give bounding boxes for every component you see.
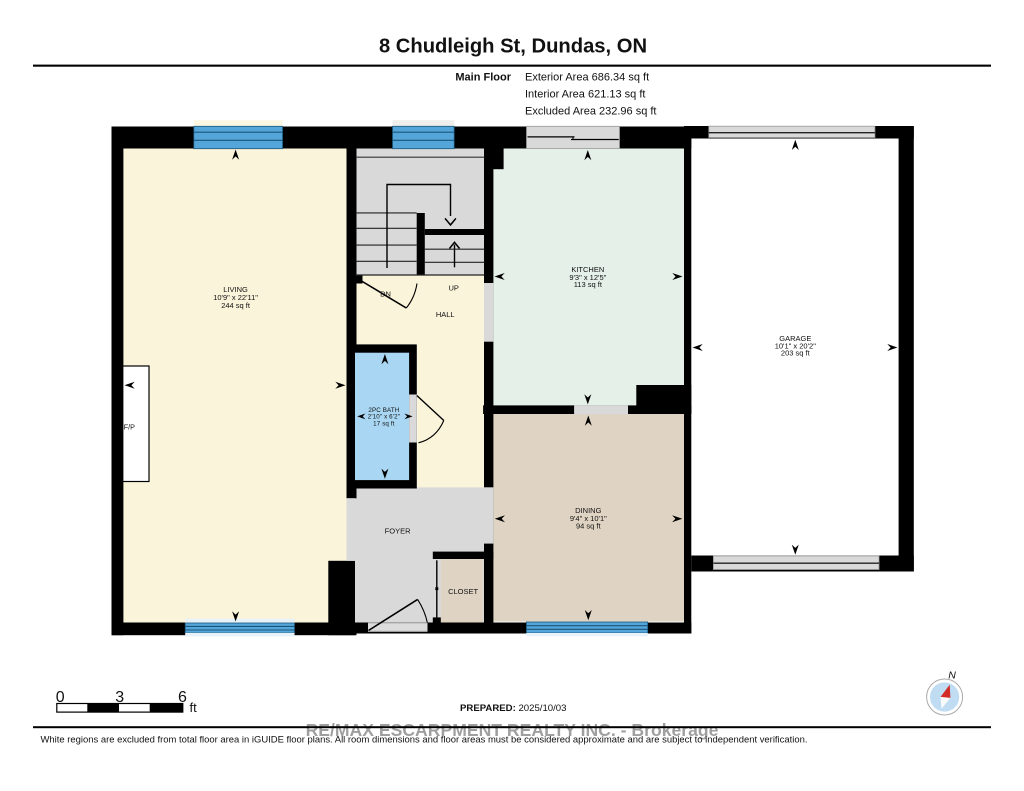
svg-text:244 sq ft: 244 sq ft <box>221 301 251 310</box>
svg-text:ft: ft <box>190 700 198 715</box>
svg-text:17 sq ft: 17 sq ft <box>373 420 395 427</box>
svg-text:F/P: F/P <box>124 423 135 432</box>
svg-text:PREPARED: 2025/10/03: PREPARED: 2025/10/03 <box>460 703 566 714</box>
svg-text:113 sq ft: 113 sq ft <box>574 280 603 289</box>
svg-text:FOYER: FOYER <box>385 526 411 535</box>
svg-text:N: N <box>948 670 956 682</box>
svg-text:White regions are excluded fro: White regions are excluded from total fl… <box>41 735 808 746</box>
svg-text:Excluded Area 232.96 sq ft: Excluded Area 232.96 sq ft <box>525 106 656 118</box>
svg-text:94 sq ft: 94 sq ft <box>576 522 602 531</box>
svg-text:203 sq ft: 203 sq ft <box>781 349 811 358</box>
svg-text:HALL: HALL <box>436 310 455 319</box>
svg-text:Exterior Area 686.34 sq ft: Exterior Area 686.34 sq ft <box>525 72 649 84</box>
svg-text:DN: DN <box>380 289 391 298</box>
svg-text:Main Floor: Main Floor <box>455 72 511 84</box>
svg-text:CLOSET: CLOSET <box>448 587 478 596</box>
svg-text:Interior Area 621.13 sq ft: Interior Area 621.13 sq ft <box>525 89 645 101</box>
svg-text:8 Chudleigh St, Dundas, ON: 8 Chudleigh St, Dundas, ON <box>379 36 647 58</box>
svg-text:UP: UP <box>448 284 458 293</box>
